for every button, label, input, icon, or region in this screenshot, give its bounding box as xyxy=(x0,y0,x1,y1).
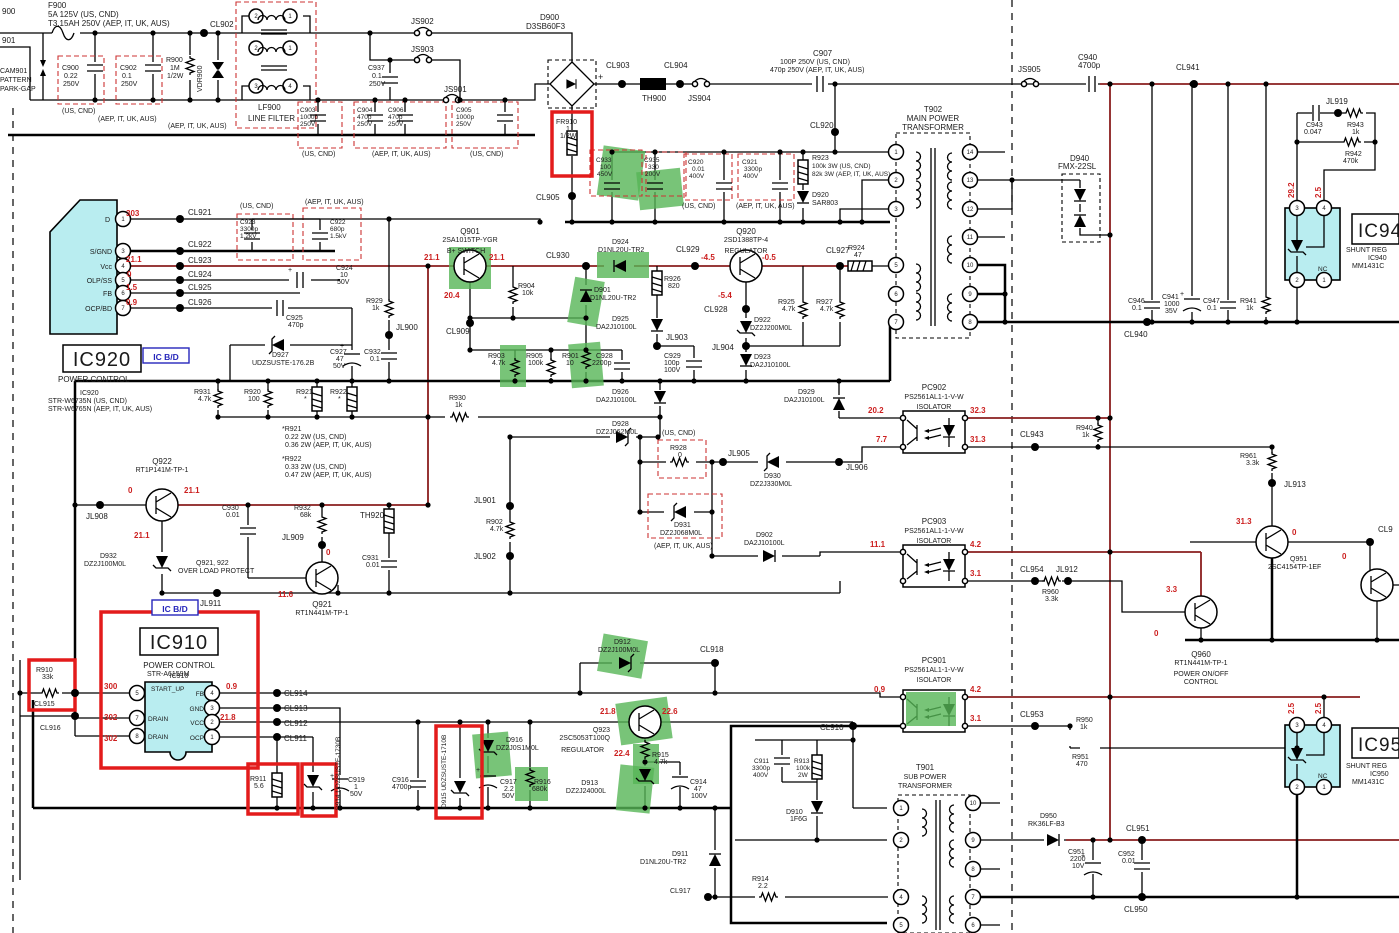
thermistor-th920 xyxy=(384,509,394,533)
1-label: 0.22 xyxy=(64,73,78,80)
p11-label: 11 xyxy=(967,235,974,241)
pFB2-label: FB xyxy=(196,691,204,698)
cl924-label: CL924 xyxy=(188,270,212,279)
1-label: POWER CONTROL xyxy=(58,375,130,384)
pOCP2-label: OCP xyxy=(190,735,204,742)
1-label: PATTERN xyxy=(0,77,32,84)
1-label: 4.7k xyxy=(820,306,834,313)
1-label: 3.3k xyxy=(1246,460,1260,467)
cl926-label: CL926 xyxy=(188,298,212,307)
1-label: 100k xyxy=(528,360,544,367)
1-label: 3300p xyxy=(744,166,762,173)
cl940-label: CL940 xyxy=(1124,330,1148,339)
1-label: 3300p xyxy=(240,226,258,233)
v09-label: 0.9 xyxy=(874,685,886,694)
0-label: PC902 xyxy=(922,383,947,392)
0-label: SHUNT REG xyxy=(1346,247,1387,254)
v25-label: 2.5 xyxy=(1314,186,1323,198)
1-label: 10 xyxy=(566,360,574,367)
0-label: R960 xyxy=(1042,589,1059,596)
0-label: C917 xyxy=(500,779,517,786)
0-label: C904 xyxy=(357,107,373,114)
v313-label: 31.3 xyxy=(1236,517,1252,526)
2-label: 250V xyxy=(388,121,404,128)
opto-pc903 xyxy=(900,545,967,587)
1-label: 10k xyxy=(522,290,534,297)
vm45-label: -4.5 xyxy=(701,253,715,262)
cl941-label: CL941 xyxy=(1176,63,1200,72)
1-label: IC950 xyxy=(1370,771,1389,778)
1-label: SUB POWER xyxy=(904,774,947,781)
0-label: C931 xyxy=(362,555,379,562)
0-label: D926 xyxy=(612,389,629,396)
2-label: 400V xyxy=(753,772,769,779)
1-label: 2.2 xyxy=(758,883,768,890)
transistor-q960 xyxy=(1185,596,1217,628)
1-label: 680p xyxy=(330,226,345,233)
0-label: D922 xyxy=(754,317,771,324)
1-label: 680k xyxy=(532,786,548,793)
0-label: C906 xyxy=(388,107,404,114)
0-label: Q901 xyxy=(460,227,480,236)
v31-label: 3.1 xyxy=(970,569,982,578)
0-label: CAM901 xyxy=(0,68,27,75)
v303-label: 303 xyxy=(126,209,140,218)
2-label: 250V xyxy=(121,81,138,88)
t901-pins xyxy=(894,796,981,933)
js902-label: JS902 xyxy=(411,17,434,26)
0-label: D901 xyxy=(594,287,611,294)
1-label: 1 xyxy=(566,126,570,133)
0-label: R943 xyxy=(1347,122,1364,129)
cl951-label: CL951 xyxy=(1126,824,1150,833)
jl905-label: JL905 xyxy=(728,449,750,458)
1-label: OVER LOAD PROTECT xyxy=(178,568,255,575)
schematic-page: 900 901 CAM901 PATTERN PARK-GAP F900 5A … xyxy=(0,0,1399,933)
jl902-label: JL902 xyxy=(474,552,496,561)
2-label: PARK-GAP xyxy=(0,86,36,93)
opto-pc902 xyxy=(900,411,967,453)
v202-label: 20.2 xyxy=(868,406,884,415)
pOCP-label: OCP/BD xyxy=(85,306,112,313)
v211-label: 21.1 xyxy=(134,531,150,540)
1-label: 100P 250V (US, CND) xyxy=(780,59,850,66)
plus-label: + xyxy=(340,343,344,350)
jl909-label: JL909 xyxy=(282,533,304,542)
v323-label: 32.3 xyxy=(970,406,986,415)
0-label: R961 xyxy=(1240,453,1257,460)
0-label: C924 xyxy=(336,265,353,272)
cl95x-label: CL9 xyxy=(1378,525,1393,534)
4-label: STR-W6765N (AEP, IT, UK, AUS) xyxy=(48,406,152,413)
cl950-label: CL950 xyxy=(1124,905,1148,914)
0-label: Q921, 922 xyxy=(196,560,229,567)
1-label: 0.1 xyxy=(370,356,380,363)
v33-label: 3.3 xyxy=(1166,585,1178,594)
pFB-label: FB xyxy=(103,291,112,298)
jl908-label: JL908 xyxy=(86,512,108,521)
1-label: 330 xyxy=(648,164,659,171)
0-label: R905 xyxy=(526,353,543,360)
0-label: R926 xyxy=(664,276,681,283)
0-label: T902 xyxy=(924,105,943,114)
plus-label: + xyxy=(330,773,334,780)
cl905-label: CL905 xyxy=(536,193,560,202)
2-label: 250V xyxy=(63,81,80,88)
0-label: R927 xyxy=(816,299,833,306)
1-label: DA2J10100L xyxy=(596,397,637,404)
1-label: IC940 xyxy=(1368,255,1387,262)
1-label: * xyxy=(338,396,341,403)
v25-label: 2.5 xyxy=(1287,702,1296,714)
1-label: DA2J10100L xyxy=(744,540,785,547)
0-label: R903 xyxy=(488,353,505,360)
cl954-label: CL954 xyxy=(1020,565,1044,574)
1-label: 0.1 xyxy=(1132,305,1142,312)
0-label: C911 xyxy=(754,758,769,765)
1-label: 3.3k xyxy=(1045,596,1059,603)
1-label: RT1N441M-TP-1 xyxy=(295,610,348,617)
icbd-label: IC B/D xyxy=(162,604,188,614)
0-label: T901 xyxy=(916,763,935,772)
v204-label: 20.4 xyxy=(444,291,460,300)
cl916-label: CL916 xyxy=(40,725,61,732)
us-label: (US, CND) xyxy=(62,108,95,115)
pVCC-label: VCC xyxy=(190,720,204,727)
us-label: (US, CND) xyxy=(662,430,695,437)
3-label: CONTROL xyxy=(1184,679,1218,686)
0-label: C952 xyxy=(1118,851,1135,858)
v15-label: 1.5 xyxy=(126,283,138,292)
0-label: R910 xyxy=(36,667,53,674)
0-label: R925 xyxy=(778,299,795,306)
1-label: DZ2J068M0L xyxy=(660,530,702,537)
1-label: D1NL20U-TR2 xyxy=(590,295,636,302)
1-label: 0.1 xyxy=(1207,305,1217,312)
ic920-block xyxy=(50,200,189,372)
2-label: REGULATOR xyxy=(561,747,604,754)
1-label: 2SC5053T100Q xyxy=(559,735,610,742)
v313-label: 31.3 xyxy=(970,435,986,444)
aep-label: (AEP, IT, UK, AUS) xyxy=(654,543,713,550)
1-label: 1000p xyxy=(300,114,318,121)
1-label: 0.01 xyxy=(366,562,380,569)
3-label: STR-W6735N (US, CND) xyxy=(48,398,127,405)
nc-label: NC xyxy=(1318,266,1328,273)
v292-label: 29.2 xyxy=(1287,182,1296,198)
0-label: C943 xyxy=(1306,122,1323,129)
1-label: 1k xyxy=(1352,129,1360,136)
1-label: 2.2 xyxy=(504,786,514,793)
0-label: R916 xyxy=(534,779,551,786)
1-label: 100k 3W (US, CND) xyxy=(812,163,871,170)
component-symbols xyxy=(40,9,1393,930)
spark-gap-icon xyxy=(40,60,46,76)
cl915-label: CL915 xyxy=(34,701,55,708)
1-label: * xyxy=(304,396,307,403)
v211-label: 21.1 xyxy=(126,255,142,264)
aep-label: (AEP, IT, UK, AUS) xyxy=(736,203,795,210)
1-label: 100p xyxy=(664,360,680,367)
0-label: C933 xyxy=(596,157,612,164)
1-label: RT1N441M-TP-1 xyxy=(1174,660,1227,667)
1-label: 470p xyxy=(388,114,403,121)
1-label: PS2561AL1-1-V-W xyxy=(904,394,964,401)
1-label: PS2561AL1-1-V-W xyxy=(904,667,964,674)
0-label: C914 xyxy=(690,779,707,786)
1-label: 2SC4154TP-1EF xyxy=(1268,564,1321,571)
v77-label: 7.7 xyxy=(876,435,888,444)
v218-label: 21.8 xyxy=(220,713,236,722)
cl921-label: CL921 xyxy=(188,208,212,217)
cl913-label: CL913 xyxy=(284,704,308,713)
0-label: C941 xyxy=(1162,294,1179,301)
1-label: DZ2J330M0L xyxy=(750,481,792,488)
1-label: 1k xyxy=(372,305,380,312)
2-label: ISOLATOR xyxy=(917,538,952,545)
2-label: 2W xyxy=(798,772,809,779)
1-label: 1F6G xyxy=(790,816,808,823)
ic940box-label: IC94 xyxy=(1358,221,1399,242)
t902-pins xyxy=(889,145,978,330)
0-label: C920 xyxy=(688,159,704,166)
1-label: 0.1 xyxy=(122,73,132,80)
transistor-q923 xyxy=(629,706,661,738)
0-label: R920 xyxy=(244,389,261,396)
1-label: 1k xyxy=(1080,724,1088,731)
v211-label: 21.1 xyxy=(184,486,200,495)
0-label: D929 xyxy=(798,389,815,396)
cl914-label: CL914 xyxy=(284,689,308,698)
us-label: (US, CND) xyxy=(682,203,715,210)
0-label: C930 xyxy=(222,505,239,512)
0-label: F900 xyxy=(48,1,67,10)
1-label: LINE FILTER xyxy=(248,114,295,123)
2-label: 100V xyxy=(664,367,681,374)
1-label: 5A 125V (US, CND) xyxy=(48,10,119,19)
2-label: 1.2kV xyxy=(240,233,257,240)
1-label: 47 xyxy=(694,786,702,793)
1-label: 4.7k xyxy=(654,759,668,766)
jl900-label: JL900 xyxy=(396,323,418,332)
1-label: 0.01 xyxy=(1122,858,1136,865)
1-label: PS2561AL1-1-V-W xyxy=(904,528,964,535)
1-label: DZ2J0S1M0L xyxy=(496,745,539,752)
1-label: 0.01 xyxy=(226,512,240,519)
0-label: D902 xyxy=(756,532,773,539)
0-label: R941 xyxy=(1240,298,1257,305)
1-label: 3300p xyxy=(752,765,770,772)
js904-label: JS904 xyxy=(688,94,711,103)
aep-label: (AEP, IT, UK, AUS) xyxy=(305,199,364,206)
v302-label: 302 xyxy=(104,734,118,743)
1-label: 470k xyxy=(1343,158,1359,165)
cl925-label: CL925 xyxy=(188,283,212,292)
1-label: 33k xyxy=(42,674,54,681)
v211-label: 21.1 xyxy=(489,253,505,262)
transistor-q922 xyxy=(146,489,178,521)
1-label: 1000p xyxy=(456,114,474,121)
1-label: 470p xyxy=(288,322,304,329)
2-label: IC920 xyxy=(80,390,99,397)
1-label: 4.7k xyxy=(490,526,504,533)
1-label: 68k xyxy=(300,512,312,519)
ic940-block xyxy=(1285,201,1399,288)
1-label: UDZSUSTE-176.2B xyxy=(252,360,315,367)
v211-label: 21.1 xyxy=(424,253,440,262)
0-label: D900 xyxy=(540,13,560,22)
v0-label: 0 xyxy=(1154,629,1159,638)
0-label: Q921 xyxy=(312,600,332,609)
1-label: 4.7k xyxy=(492,360,506,367)
pSG-label: S/GND xyxy=(90,249,112,256)
1-label: D3SB60F3 xyxy=(526,22,566,31)
0-label: D950 xyxy=(1040,813,1057,820)
0-label: R902 xyxy=(486,519,503,526)
2-label: 250V xyxy=(456,121,472,128)
d914-label: D914 UDZSUSTE-1730B xyxy=(335,737,342,810)
0-label: R913 xyxy=(794,758,810,765)
us-label: (US, CND) xyxy=(302,151,335,158)
0-label: C922 xyxy=(330,219,346,226)
0-label: R904 xyxy=(518,283,535,290)
2-label: MM1431C xyxy=(1352,263,1384,270)
transistor-partial xyxy=(1361,569,1393,601)
0-label: FR910 xyxy=(556,119,577,126)
cl930-label: CL930 xyxy=(546,251,570,260)
0-label: C937 xyxy=(368,65,385,72)
1-label: 470 xyxy=(1076,761,1088,768)
js903-label: JS903 xyxy=(411,45,434,54)
2-label: 250V xyxy=(300,121,316,128)
0-label: D925 xyxy=(612,316,629,323)
v226-label: 22.6 xyxy=(662,707,678,716)
jl912-label: JL912 xyxy=(1056,565,1078,574)
1-label: 100k xyxy=(796,765,811,772)
0-label: D930 xyxy=(764,473,781,480)
0-label: R923 xyxy=(812,155,829,162)
cl922-label: CL922 xyxy=(188,240,212,249)
0-label: R915 xyxy=(652,752,669,759)
v25-label: 2.5 xyxy=(1314,702,1323,714)
pOLP-label: OLP/SS xyxy=(87,278,113,285)
vm54-label: -5.4 xyxy=(718,291,732,300)
1-label: DA2J10100L xyxy=(784,397,825,404)
0-label: SHUNT REG xyxy=(1346,763,1387,770)
2-label: 1.5kV xyxy=(330,233,347,240)
0-label: D923 xyxy=(754,354,771,361)
1-label: DZ2J100M0L xyxy=(598,647,640,654)
v111-label: 11.1 xyxy=(870,540,886,549)
1-label: SAR803 xyxy=(812,200,838,207)
1-label: 10 xyxy=(340,272,348,279)
0-label: PC901 xyxy=(922,656,947,665)
1-label: 2200p xyxy=(592,360,612,367)
1-label: DA2J10100L xyxy=(596,324,637,331)
2-label: 35V xyxy=(1165,308,1178,315)
1-label: 47 xyxy=(854,252,862,259)
0-label: C923 xyxy=(240,219,256,226)
cl943-label: CL943 xyxy=(1020,430,1044,439)
transistor-q951 xyxy=(1256,526,1288,558)
2-label: ISOLATOR xyxy=(917,404,952,411)
0-label: PC903 xyxy=(922,517,947,526)
0-label: R921 xyxy=(296,389,313,396)
2-label: 450V xyxy=(597,171,613,178)
plus-label: + xyxy=(476,767,480,774)
v42-label: 4.2 xyxy=(970,685,982,694)
0-label: R929 xyxy=(366,298,383,305)
0-label: C903 xyxy=(300,107,316,114)
cl904-label: CL904 xyxy=(664,61,688,70)
0-label: D927 xyxy=(272,352,289,359)
0-label: R951 xyxy=(1072,754,1089,761)
1-label: 4700p xyxy=(1078,61,1101,70)
jl911-label: JL911 xyxy=(200,599,222,608)
v0-label: 0 xyxy=(1342,552,1347,561)
pc901-highlight xyxy=(906,692,956,726)
cl923-label: CL923 xyxy=(188,256,212,265)
1-label: 0.01 xyxy=(692,166,705,173)
0-label: R931 xyxy=(194,389,211,396)
1-label: 2SA1015TP-YGR xyxy=(442,237,497,244)
cl929-label: CL929 xyxy=(676,245,700,254)
v218-label: 21.8 xyxy=(600,707,616,716)
us-label: (US, CND) xyxy=(240,203,273,210)
v09-label: 0.9 xyxy=(226,682,238,691)
2-label: 0.36 2W (AEP, IT, UK, AUS) xyxy=(285,442,372,449)
pVcc-label: Vcc xyxy=(100,264,112,271)
us-label: (US, CND) xyxy=(470,151,503,158)
power-supply-schematic: 900 901 CAM901 PATTERN PARK-GAP F900 5A … xyxy=(0,0,1399,933)
aep-label: (AEP, IT, UK, AUS) xyxy=(98,116,157,123)
d915-label: D915 UDZSUSTE-1710B xyxy=(441,735,448,808)
2-label: 1/2W xyxy=(560,133,577,140)
p12-label: 12 xyxy=(967,207,974,213)
p14-label: 14 xyxy=(967,150,974,156)
2-label: 200V xyxy=(645,171,661,178)
0-label: R950 xyxy=(1076,717,1093,724)
2-label: 50V xyxy=(333,363,346,370)
v224-label: 22.4 xyxy=(614,749,630,758)
1-label: 1k xyxy=(1246,305,1254,312)
nc-label: NC xyxy=(1318,773,1328,780)
1-label: 0.047 xyxy=(1304,129,1322,136)
p10-label: 10 xyxy=(970,801,977,807)
0-label: D910 xyxy=(786,809,803,816)
cl910-label: CL910 xyxy=(820,723,844,732)
aep-label: (AEP, IT, UK, AUS) xyxy=(168,123,227,130)
0-label: C928 xyxy=(596,353,613,360)
fuse-f900 xyxy=(52,26,74,40)
1-label: 47 xyxy=(336,356,344,363)
js905-label: JS905 xyxy=(1018,65,1041,74)
cl920-label: CL920 xyxy=(810,121,834,130)
th900-label: TH900 xyxy=(642,94,667,103)
1-label: 1000 xyxy=(1164,301,1180,308)
vdr900-label: VDR900 xyxy=(197,65,204,92)
2-label: 50V xyxy=(337,279,350,286)
cl902-label: CL902 xyxy=(210,20,234,29)
1-label: 470p xyxy=(357,114,372,121)
0-label: R932 xyxy=(294,505,311,512)
2-label: MM1431C xyxy=(1352,779,1384,786)
transistor-q921 xyxy=(306,562,338,594)
cl903-label: CL903 xyxy=(606,61,630,70)
0-label: C905 xyxy=(456,107,472,114)
thermistor-th900 xyxy=(640,78,666,90)
0-label: C929 xyxy=(664,353,681,360)
